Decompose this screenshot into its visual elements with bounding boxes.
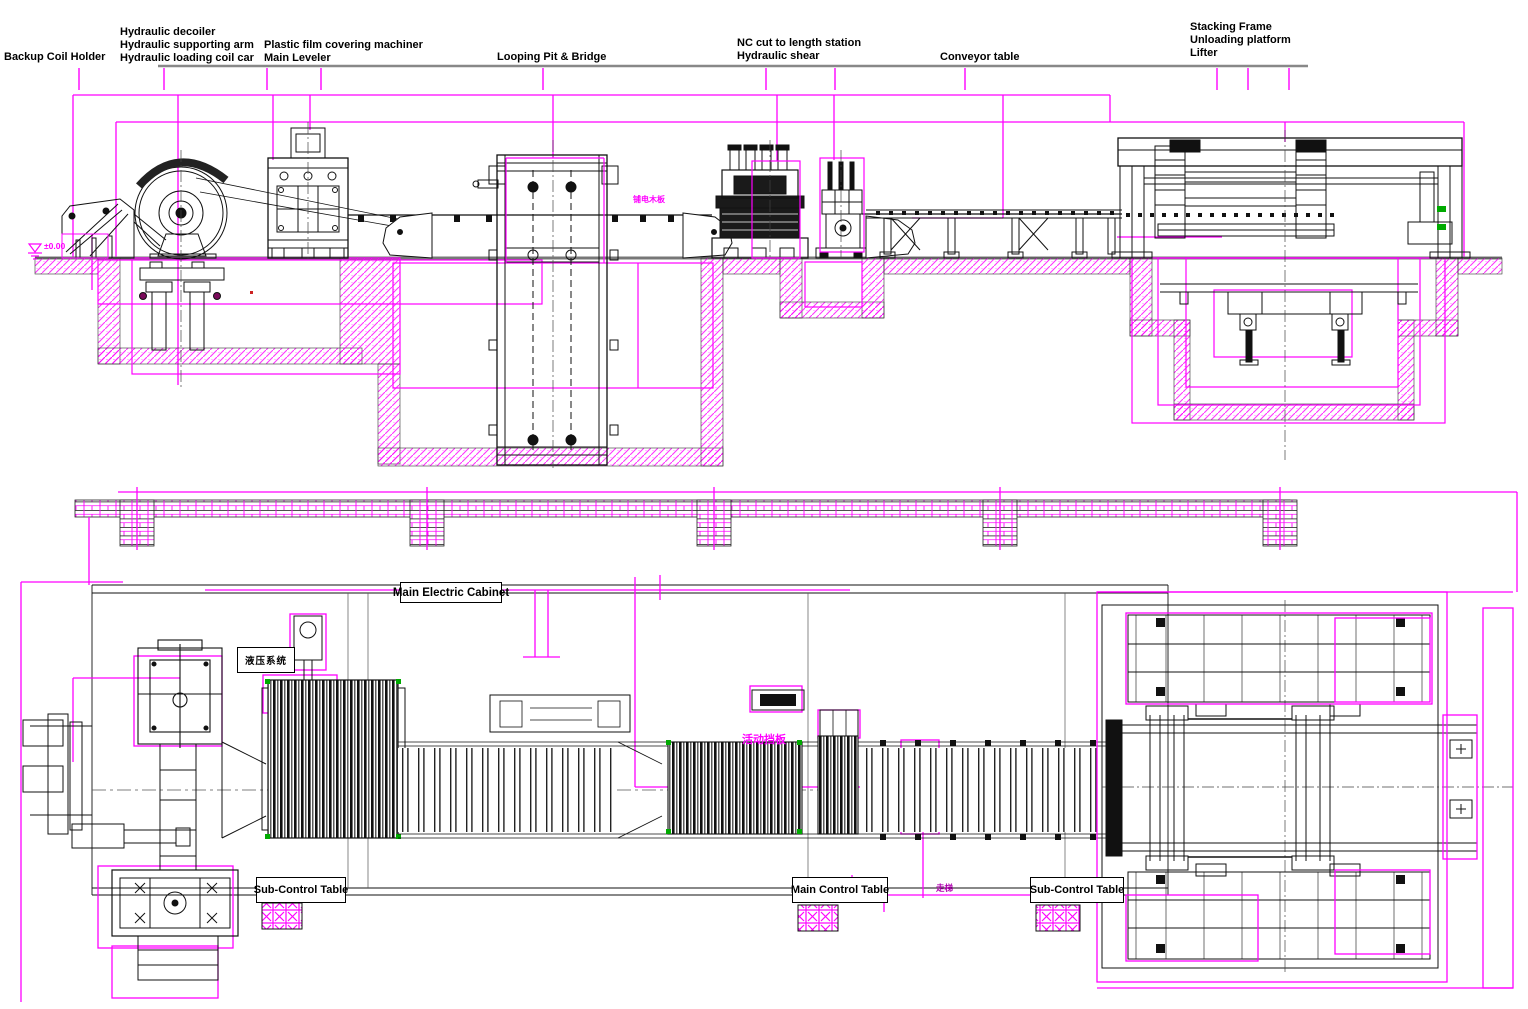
label-stacking-frame: Stacking Frame [1190, 21, 1291, 34]
stacking-frame-elevation [1112, 138, 1470, 258]
stacking-area-plan [1097, 592, 1513, 988]
coil-car-in-pit-elevation [140, 262, 225, 350]
label-backup-coil-holder: Backup Coil Holder [4, 51, 105, 64]
label-looping-pit-bridge: Looping Pit & Bridge [497, 51, 606, 64]
plant-wall-plan [75, 487, 1517, 592]
label-nc-cut-to-length: NC cut to length station [737, 37, 861, 50]
unloading-platform-lifter-elevation [1160, 284, 1418, 365]
pit-edge-support-arms [383, 213, 915, 258]
label-leader-lines [79, 66, 1308, 90]
label-hydraulic-decoiler: Hydraulic decoiler [120, 26, 254, 39]
label-film-leveler-group: Plastic film covering machiner Main Leve… [264, 39, 423, 65]
ground-and-pits [35, 237, 1502, 466]
label-hydraulic-shear: Hydraulic shear [737, 50, 861, 63]
plan-boundary [92, 585, 1168, 895]
cad-drawing-sheet: Backup Coil Holder Hydraulic decoiler Hy… [0, 0, 1528, 1009]
line-art [0, 0, 1528, 1009]
label-stacking-group: Stacking Frame Unloading platform Lifter [1190, 21, 1291, 60]
hydraulic-system-label: 液压系统 [237, 647, 295, 673]
main-electric-cabinet-label: Main Electric Cabinet [400, 582, 502, 603]
label-decoiler-group: Hydraulic decoiler Hydraulic supporting … [120, 26, 254, 65]
backup-coil-holder-plan [23, 714, 190, 848]
label-hydraulic-supporting-arm: Hydraulic supporting arm [120, 39, 254, 52]
backup-coil-holder-elevation [62, 199, 166, 258]
coil-car-plan [112, 744, 238, 980]
sub-control-table-left-label: Sub-Control Table [256, 877, 346, 903]
level-mark-text: ±0.00 [44, 241, 65, 251]
guard-note-text: 活动挡板 [742, 731, 786, 747]
label-unloading-platform: Unloading platform [1190, 34, 1291, 47]
strip-note-text: 铺电木板 [633, 194, 665, 205]
looping-bridge-elevation [473, 155, 618, 465]
label-conveyor-table: Conveyor table [940, 51, 1019, 64]
sub-control-table-right-label: Sub-Control Table [1030, 877, 1124, 903]
label-lifter: Lifter [1190, 47, 1291, 60]
control-tables-plan [262, 903, 1080, 931]
label-film-covering-machine: Plastic film covering machiner [264, 39, 423, 52]
ladder-note-text: 走梯 [936, 882, 953, 894]
label-main-leveler: Main Leveler [264, 52, 423, 65]
main-control-table-label: Main Control Table [792, 877, 888, 903]
label-shear-group: NC cut to length station Hydraulic shear [737, 37, 861, 63]
label-hydraulic-loading-coil-car: Hydraulic loading coil car [120, 52, 254, 65]
red-marker-dot [250, 291, 253, 294]
hydraulic-decoiler-elevation [135, 162, 408, 259]
